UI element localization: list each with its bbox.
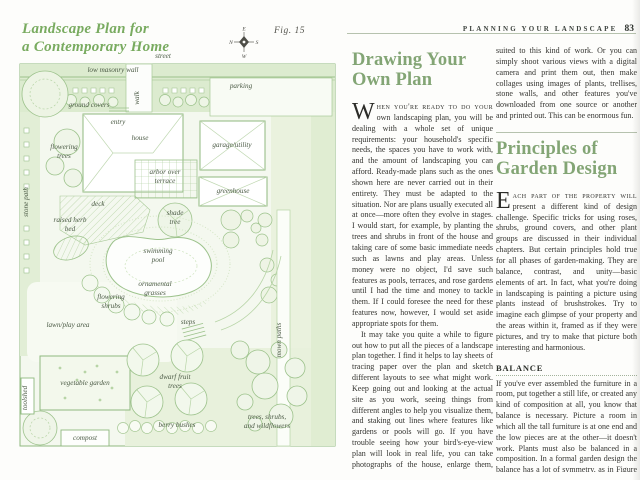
plan-label: greenhouse: [217, 187, 251, 195]
plan-label: mown paths: [275, 323, 283, 358]
plan-label: trees, shrubs,: [248, 413, 286, 421]
running-head: PLANNING YOUR LANDSCAPE: [463, 25, 618, 33]
landscape-plan-drawing: streetlow masonry wallparkingwalkground …: [15, 50, 337, 455]
plan-label: shrubs: [101, 302, 120, 310]
plan-label: flowering: [97, 293, 125, 301]
paragraph: When you're ready to do your own landsca…: [352, 102, 493, 330]
plan-label: shade: [167, 209, 185, 217]
plan-label: low masonry wall: [87, 66, 138, 74]
plan-label: ornamental: [138, 280, 171, 288]
plan-label: toolshed: [21, 385, 29, 410]
plan-label: tree: [170, 218, 182, 226]
drop-cap: W: [352, 102, 377, 123]
section-heading-drawing-your-own-plan: Drawing Your Own Plan: [352, 50, 493, 90]
plan-title-line1: Landscape Plan for: [22, 20, 242, 38]
plan-label: trees: [57, 152, 71, 160]
paragraph: suited to this kind of work. Or you can …: [496, 46, 637, 122]
plan-label: trees: [168, 382, 182, 390]
text-column-left: Drawing Your Own Plan When you're ready …: [352, 44, 493, 472]
svg-text:E: E: [241, 27, 246, 33]
plan-label: compost: [73, 434, 98, 442]
plan-label: raised herb: [54, 216, 87, 224]
plan-label: walk: [133, 90, 141, 104]
plan-label: pool: [151, 256, 165, 264]
paragraph: If you've ever assembled the furniture i…: [496, 379, 637, 472]
paragraph: Each part of the property will present a…: [496, 191, 637, 354]
plan-label: bed: [65, 225, 76, 233]
plan-label: and wildflowers: [244, 422, 290, 430]
book-spread: Landscape Plan for a Contemporary Home E…: [0, 0, 640, 480]
plan-label: parking: [229, 82, 253, 90]
plan-label: berry bushes: [159, 421, 196, 429]
svg-text:N: N: [228, 40, 233, 46]
plan-label: flowering: [50, 143, 78, 151]
plan-label: street: [155, 52, 172, 60]
plan-label: grasses: [144, 289, 166, 297]
plan-label: deck: [91, 200, 105, 208]
left-page: Landscape Plan for a Contemporary Home E…: [0, 0, 345, 480]
plan-label: dwarf fruit: [160, 373, 192, 381]
plan-label: entry: [111, 118, 127, 126]
section-heading-principles-of-garden-design: Principles of Garden Design: [496, 139, 637, 179]
figure-number: Fig. 15: [274, 26, 305, 36]
right-page: PLANNING YOUR LANDSCAPE83 Drawing Your O…: [345, 0, 640, 480]
plan-label: vegetable garden: [60, 379, 110, 387]
plan-label: stone path: [22, 187, 30, 217]
plan-label: ground covers: [68, 101, 109, 109]
header-rule: [347, 33, 636, 34]
plan-label: swimming: [143, 247, 173, 255]
plan-label: steps: [181, 318, 196, 326]
plan-label: terrace: [155, 177, 177, 185]
drop-cap: E: [496, 191, 513, 212]
plan-label: arbor over: [150, 168, 181, 176]
plan-label: house: [132, 134, 150, 142]
plan-label: garage/utility: [212, 141, 252, 149]
section-divider-rule: [496, 132, 637, 133]
svg-text:S: S: [256, 40, 259, 46]
text-column-right: suited to this kind of work. Or you can …: [496, 44, 637, 472]
subheading-balance: BALANCE: [496, 363, 637, 376]
plan-label: lawn/play area: [46, 321, 89, 329]
paragraph: It may take you quite a while to figure …: [352, 330, 493, 472]
